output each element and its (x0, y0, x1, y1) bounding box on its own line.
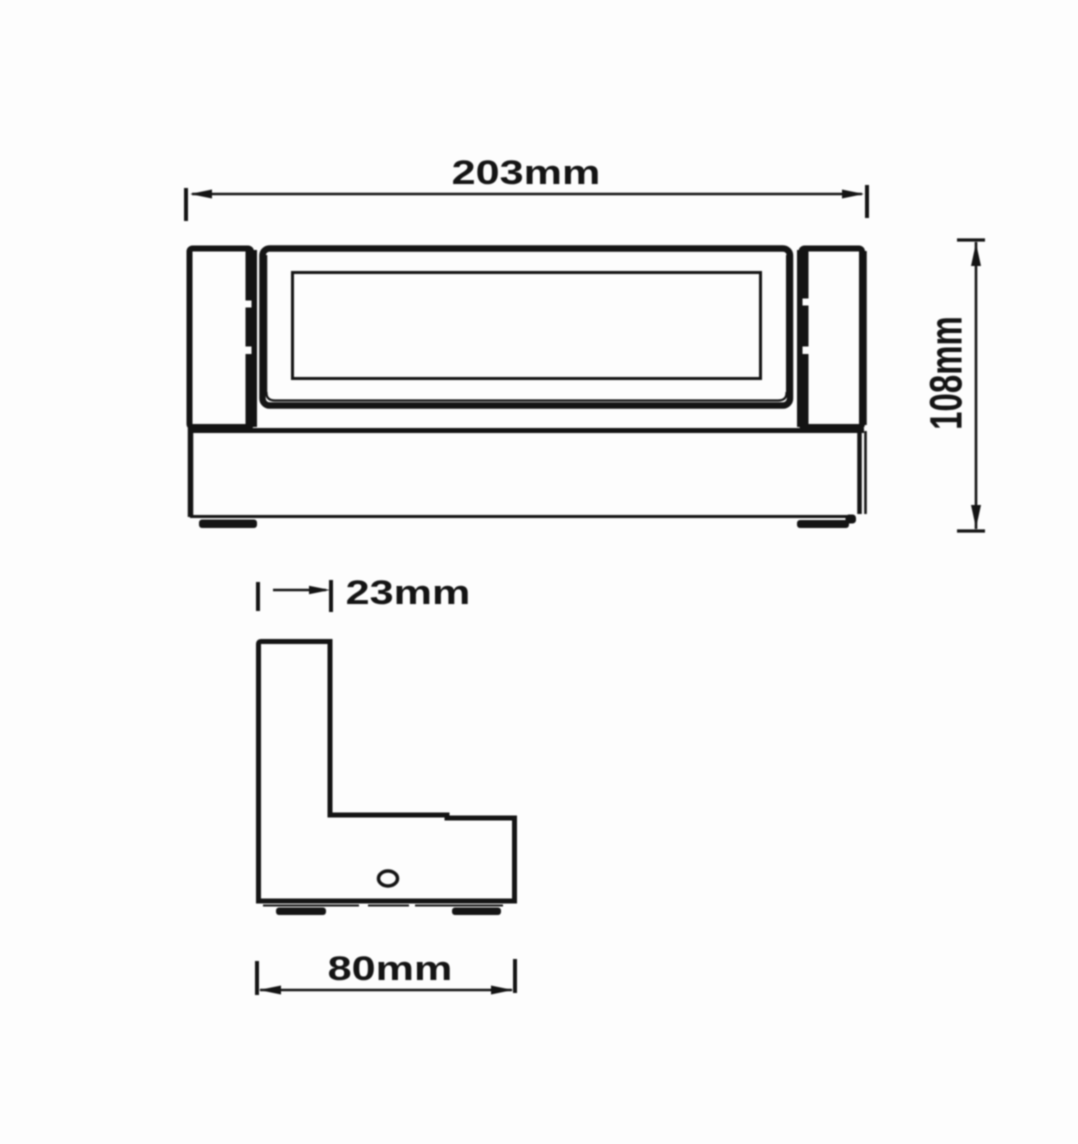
svg-text:23mm: 23mm (346, 574, 471, 612)
svg-text:203mm: 203mm (452, 154, 601, 192)
svg-text:80mm: 80mm (328, 950, 453, 988)
svg-text:108mm: 108mm (921, 316, 971, 430)
